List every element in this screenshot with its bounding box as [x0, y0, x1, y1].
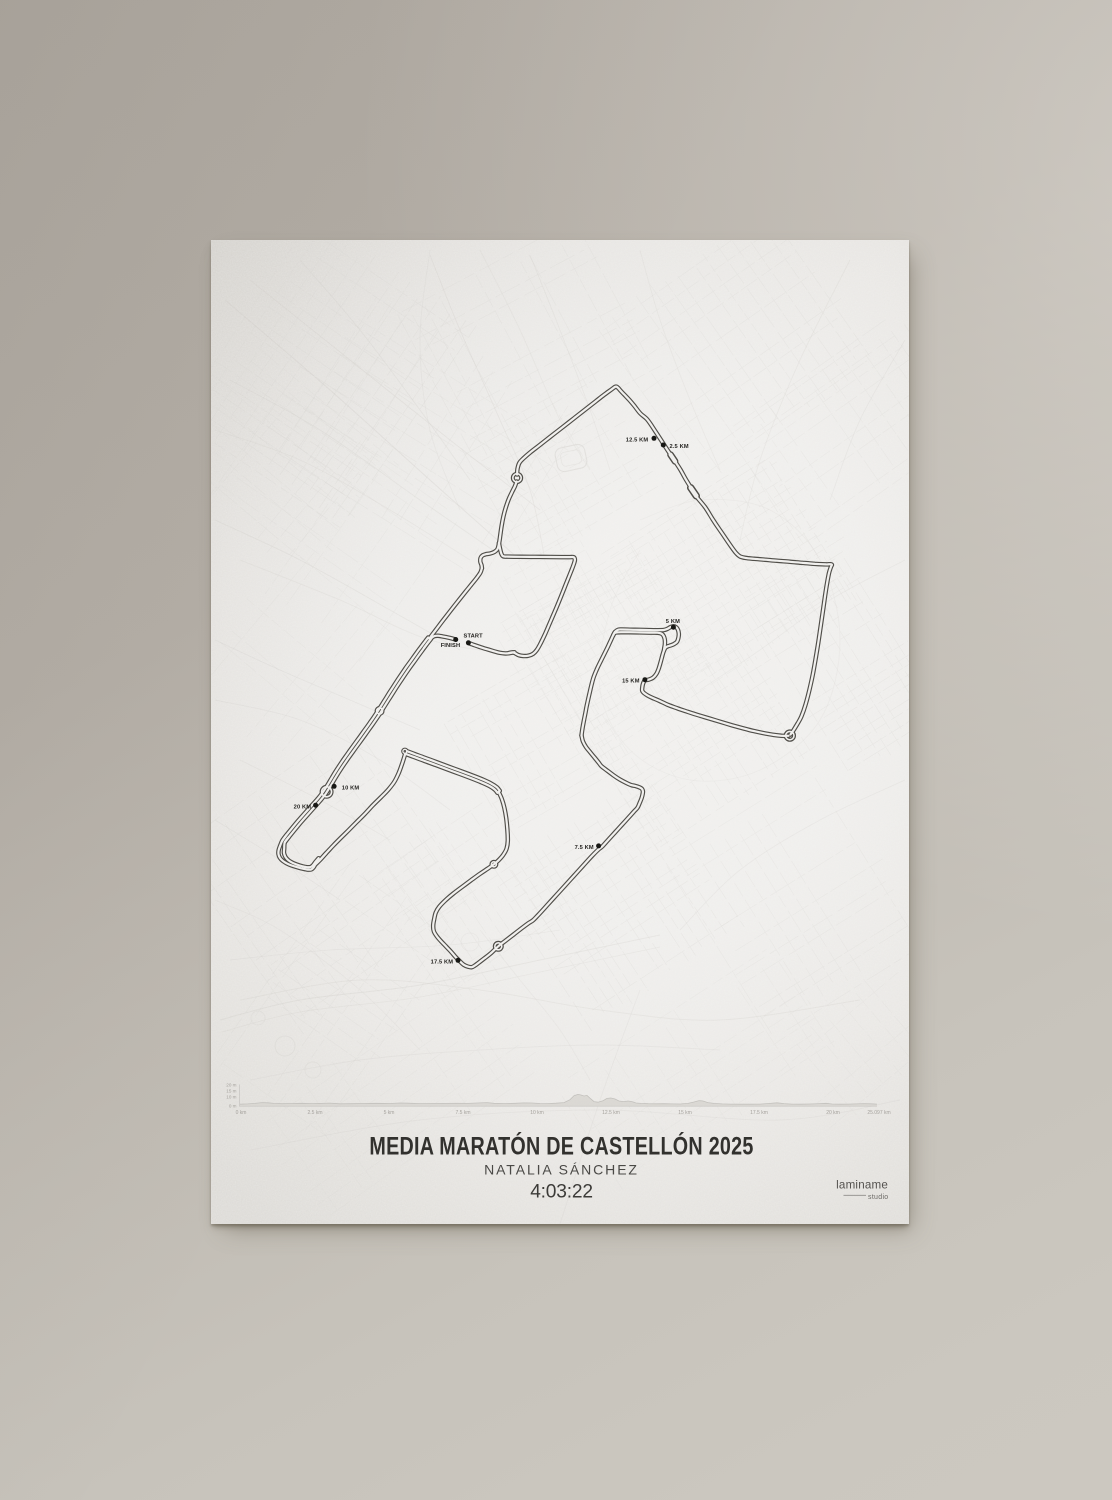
svg-text:17.5 km: 17.5 km	[750, 1110, 768, 1116]
svg-text:0 km: 0 km	[236, 1110, 247, 1116]
svg-text:laminame: laminame	[836, 1179, 888, 1192]
svg-text:25.097 km: 25.097 km	[867, 1110, 890, 1116]
svg-text:10 m: 10 m	[226, 1095, 236, 1100]
svg-text:15 m: 15 m	[226, 1089, 236, 1094]
svg-text:7.5 km: 7.5 km	[455, 1110, 470, 1116]
svg-text:15 km: 15 km	[678, 1110, 692, 1116]
svg-text:7.5 KM: 7.5 KM	[575, 845, 594, 851]
svg-text:20 km: 20 km	[826, 1110, 840, 1116]
svg-text:NATALIA SÁNCHEZ: NATALIA SÁNCHEZ	[484, 1162, 639, 1178]
svg-text:15 KM: 15 KM	[622, 679, 640, 685]
svg-text:2.5 KM: 2.5 KM	[670, 444, 689, 450]
svg-text:5 km: 5 km	[384, 1110, 395, 1116]
svg-text:20 m: 20 m	[226, 1083, 236, 1088]
svg-text:START: START	[464, 634, 484, 640]
svg-text:studio: studio	[868, 1194, 888, 1201]
svg-text:2.5 km: 2.5 km	[307, 1110, 322, 1116]
svg-text:17.5 KM: 17.5 KM	[431, 959, 454, 965]
svg-text:0 m: 0 m	[229, 1104, 237, 1109]
svg-text:FINISH: FINISH	[441, 643, 461, 649]
svg-text:10 KM: 10 KM	[342, 786, 360, 792]
svg-text:12.5 km: 12.5 km	[602, 1110, 620, 1116]
svg-text:4:03:22: 4:03:22	[530, 1181, 593, 1202]
svg-text:MEDIA MARATÓN DE CASTELLÓN 202: MEDIA MARATÓN DE CASTELLÓN 2025	[369, 1131, 753, 1160]
svg-text:5 KM: 5 KM	[666, 619, 680, 625]
svg-text:10 km: 10 km	[530, 1110, 544, 1116]
svg-text:12.5 KM: 12.5 KM	[626, 437, 649, 443]
svg-text:20 KM: 20 KM	[294, 804, 312, 810]
